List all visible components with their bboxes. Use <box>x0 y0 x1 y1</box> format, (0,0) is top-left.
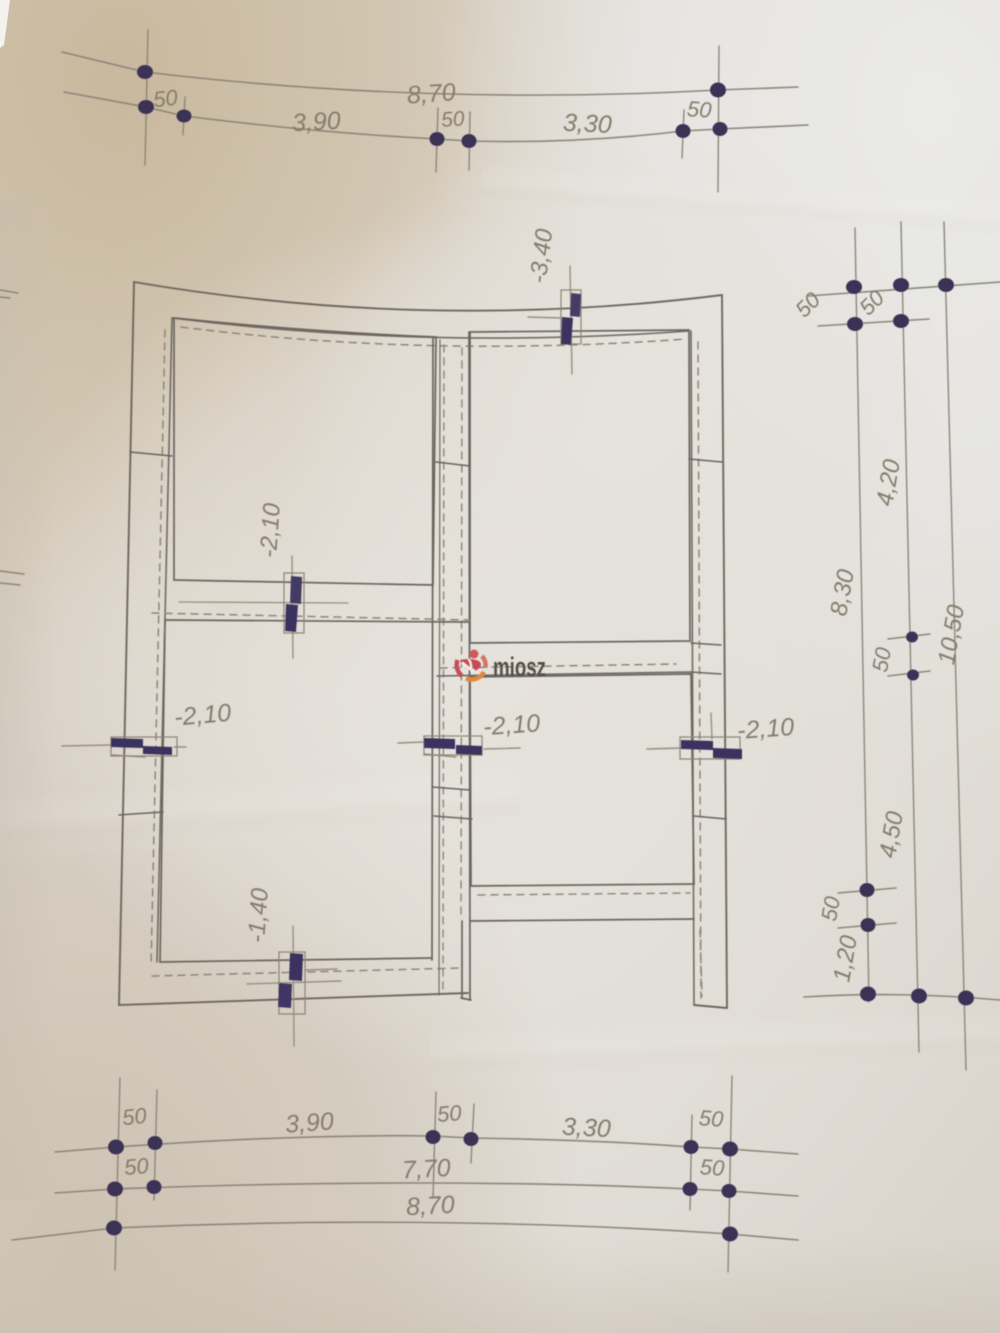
svg-text:-2,10: -2,10 <box>255 502 286 559</box>
svg-text:3,90: 3,90 <box>284 1107 335 1138</box>
svg-text:50: 50 <box>698 1105 725 1132</box>
svg-text:-2,10: -2,10 <box>173 699 232 732</box>
svg-text:3,30: 3,30 <box>561 1113 611 1144</box>
svg-text:3,90: 3,90 <box>291 107 341 138</box>
svg-text:miosz: miosz <box>493 652 546 682</box>
svg-text:50: 50 <box>440 107 465 132</box>
svg-text:8,70: 8,70 <box>405 1191 455 1222</box>
svg-text:50: 50 <box>121 1103 149 1131</box>
svg-text:50: 50 <box>699 1154 726 1181</box>
svg-text:-2,10: -2,10 <box>736 713 795 745</box>
svg-text:-2,10: -2,10 <box>482 709 541 741</box>
svg-text:50: 50 <box>816 894 845 923</box>
svg-text:-1,40: -1,40 <box>243 887 274 944</box>
svg-text:50: 50 <box>867 645 896 674</box>
svg-text:50: 50 <box>152 85 180 113</box>
svg-text:50: 50 <box>686 96 713 123</box>
svg-text:3,30: 3,30 <box>562 109 612 140</box>
svg-text:50: 50 <box>436 1100 463 1127</box>
svg-text:8,70: 8,70 <box>406 78 457 109</box>
svg-text:7,70: 7,70 <box>401 1154 451 1185</box>
svg-text:50: 50 <box>123 1153 150 1180</box>
